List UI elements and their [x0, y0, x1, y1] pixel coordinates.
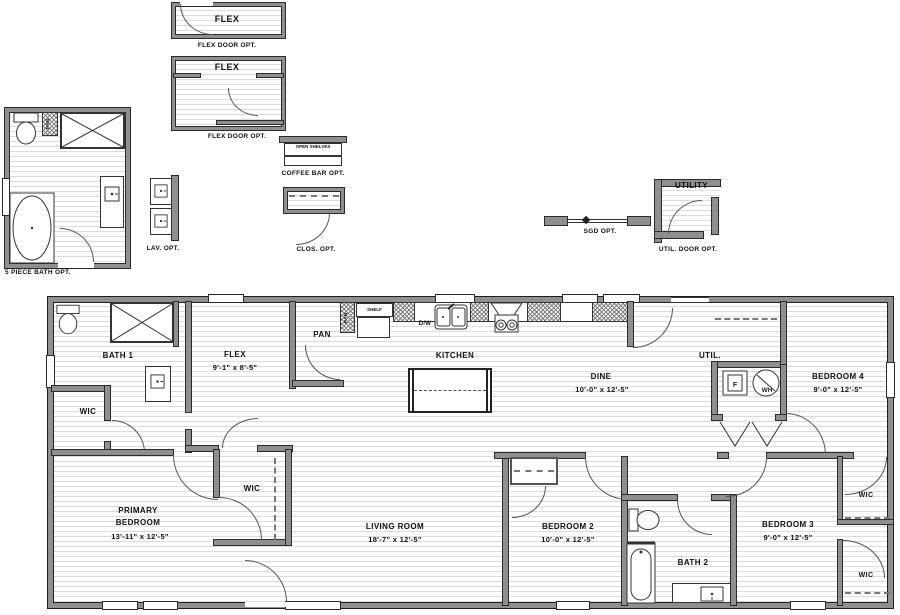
interior-wall	[217, 121, 283, 124]
interior-wall	[622, 495, 677, 500]
interior-wall	[781, 362, 786, 420]
bifold-doors-icon	[719, 420, 783, 448]
front-door-opening	[245, 602, 287, 607]
closet-rod-line	[274, 458, 276, 540]
wic3-top-label: WIC	[841, 491, 891, 501]
util-shelf-line	[715, 318, 777, 320]
closet-shelf-line	[289, 195, 339, 197]
interior-wall	[52, 386, 110, 391]
kitchen-pan-label: PAN	[343, 305, 352, 330]
flex-a-caption: FLEX DOOR OPT.	[172, 41, 282, 50]
kitchen-sink-icon	[434, 303, 468, 330]
sgd-wall-stub	[545, 217, 567, 225]
interior-wall	[293, 381, 343, 386]
sink-icon	[154, 184, 168, 198]
living-room-label: LIVING ROOM	[350, 522, 440, 532]
window	[143, 601, 178, 610]
closet-shelf-line	[845, 517, 890, 519]
open-shelves-label: OPEN SHELVES	[286, 144, 340, 150]
utility-detail-label: UTILITY	[664, 181, 719, 191]
counter-section	[470, 302, 489, 322]
island-line	[414, 390, 486, 392]
primary-bedroom-label-2: BEDROOM	[98, 518, 178, 528]
flex-b-caption: FLEX DOOR OPT.	[182, 132, 292, 141]
furnace-icon: F	[722, 370, 748, 396]
interior-wall	[214, 540, 291, 545]
water-heater-label: WH	[762, 387, 773, 394]
coffee-counter	[284, 156, 342, 166]
wic3-bottom-label: WIC	[841, 571, 891, 581]
interior-wall	[838, 457, 842, 523]
window	[790, 601, 826, 610]
interior-wall	[838, 520, 893, 524]
bedroom3-label: BEDROOM 3	[748, 520, 828, 530]
bedroom4-dims: 9'-0" x 12'-5"	[791, 385, 885, 395]
bedroom4-label: BEDROOM 4	[798, 372, 878, 382]
tub-icon	[9, 192, 55, 264]
flex-a-room-label: FLEX	[197, 14, 257, 24]
sink-icon	[150, 373, 165, 390]
util-door-caption: UTIL. DOOR OPT.	[653, 245, 723, 254]
primary-wic-label: WIC	[222, 484, 282, 494]
tub-icon	[626, 540, 656, 604]
closet-option-room	[284, 188, 344, 213]
sgd-track-lines	[567, 219, 628, 223]
sgd-wall-stub	[628, 217, 650, 225]
flex-b-room-label: FLEX	[197, 62, 257, 72]
interior-wall	[286, 450, 291, 545]
window	[556, 601, 590, 610]
window	[285, 601, 341, 610]
range-icon	[488, 302, 525, 334]
furnace-label: F	[733, 382, 738, 389]
interior-wall	[214, 450, 219, 497]
sliding-door-opening	[671, 297, 709, 303]
sink-icon	[700, 586, 724, 602]
island-end	[486, 370, 488, 411]
window	[208, 294, 244, 303]
util-label: UTIL.	[685, 351, 735, 361]
interior-wall	[290, 302, 295, 388]
shower-icon	[60, 112, 125, 149]
window	[102, 601, 138, 610]
interior-wall	[174, 302, 178, 346]
closet-shelf-line	[514, 470, 554, 472]
water-heater-icon: WH	[752, 368, 780, 398]
interior-wall	[781, 302, 786, 364]
dine-label: DINE	[561, 372, 641, 382]
interior-wall	[503, 453, 508, 605]
window	[886, 362, 895, 398]
door-arc	[296, 213, 330, 245]
wic-bath-label: WIC	[58, 407, 118, 417]
interior-wall	[257, 74, 283, 77]
counter-section	[592, 302, 628, 322]
interior-wall	[280, 137, 346, 142]
floor-plan-canvas: FLEX FLEX DOOR OPT. FLEX FLEX DOOR OPT. …	[0, 0, 900, 615]
toilet-icon	[13, 112, 39, 146]
flex-label: FLEX	[195, 350, 275, 360]
shelf-label: SHELF	[357, 307, 392, 313]
living-room-dims: 18'-7" x 12'-5"	[348, 535, 442, 545]
sink-icon	[104, 186, 120, 202]
counter-section	[393, 302, 415, 322]
interior-wall	[712, 198, 718, 234]
interior-wall	[712, 362, 717, 420]
bedroom3-dims: 9'-0" x 12'-5"	[741, 533, 835, 543]
bath-pan-label: PAN	[45, 114, 55, 134]
flex-dims: 9'-1" x 8'-5"	[190, 363, 280, 373]
interior-wall	[174, 74, 200, 77]
dine-dims: 10'-0" x 12'-5"	[557, 385, 647, 395]
closet-caption: CLOS. OPT.	[286, 245, 346, 254]
bedroom2-label: BEDROOM 2	[528, 522, 608, 532]
island-end	[412, 370, 414, 411]
counter-section	[527, 302, 561, 322]
interior-wall	[712, 362, 786, 367]
refrigerator-box	[357, 317, 390, 338]
primary-bedroom-dims: 13'-11" x 12'-5"	[92, 532, 188, 542]
coffee-bar-caption: COFFEE BAR OPT.	[278, 169, 348, 178]
toilet-icon	[628, 508, 660, 532]
interior-wall	[186, 302, 191, 412]
interior-wall	[52, 450, 173, 455]
closet-shelf-line	[845, 592, 890, 594]
bath1-label: BATH 1	[78, 351, 158, 361]
bedroom2-dims: 10'-0" x 12'-5"	[521, 535, 615, 545]
five-piece-bath-caption: 5 PIECE BATH OPT.	[5, 268, 135, 277]
vanity-counter	[100, 176, 124, 228]
primary-bedroom-label-1: PRIMARY	[98, 506, 178, 516]
shower-icon	[110, 302, 174, 343]
sgd-caption: SGD OPT.	[570, 227, 630, 236]
sink-icon	[154, 214, 168, 228]
kitchen-label: KITCHEN	[415, 351, 495, 361]
lav-caption: LAV. OPT.	[138, 244, 188, 253]
bath2-label: BATH 2	[658, 558, 728, 568]
interior-wall	[731, 495, 736, 605]
toilet-icon	[56, 303, 80, 337]
interior-wall	[172, 176, 178, 240]
window	[46, 355, 55, 388]
